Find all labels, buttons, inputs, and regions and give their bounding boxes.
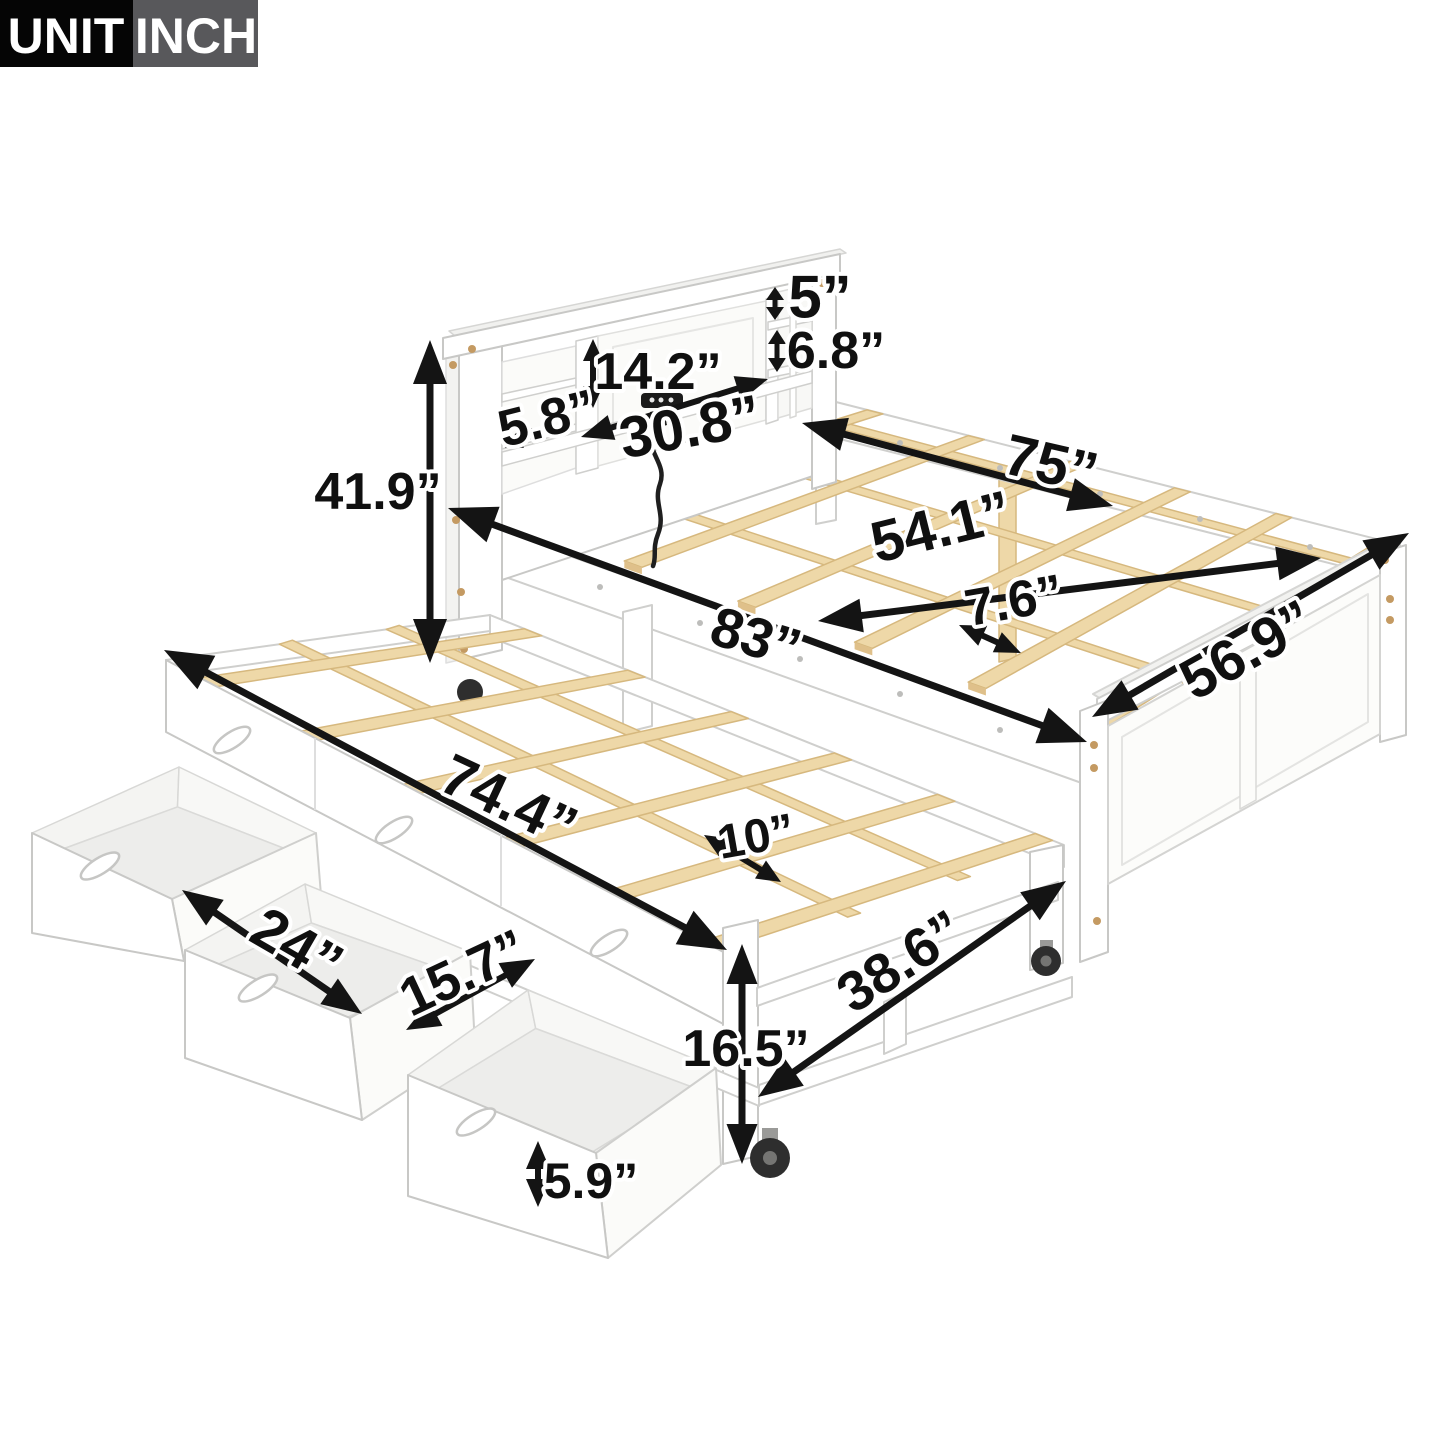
svg-text:16.5”: 16.5”	[682, 1020, 809, 1078]
svg-text:5.9”: 5.9”	[544, 1153, 639, 1209]
svg-text:41.9”: 41.9”	[314, 463, 441, 521]
svg-text:INCH: INCH	[135, 8, 257, 64]
svg-text:5”: 5”	[788, 264, 851, 331]
svg-text:6.8”: 6.8”	[787, 322, 885, 380]
svg-text:UNIT: UNIT	[8, 8, 125, 64]
